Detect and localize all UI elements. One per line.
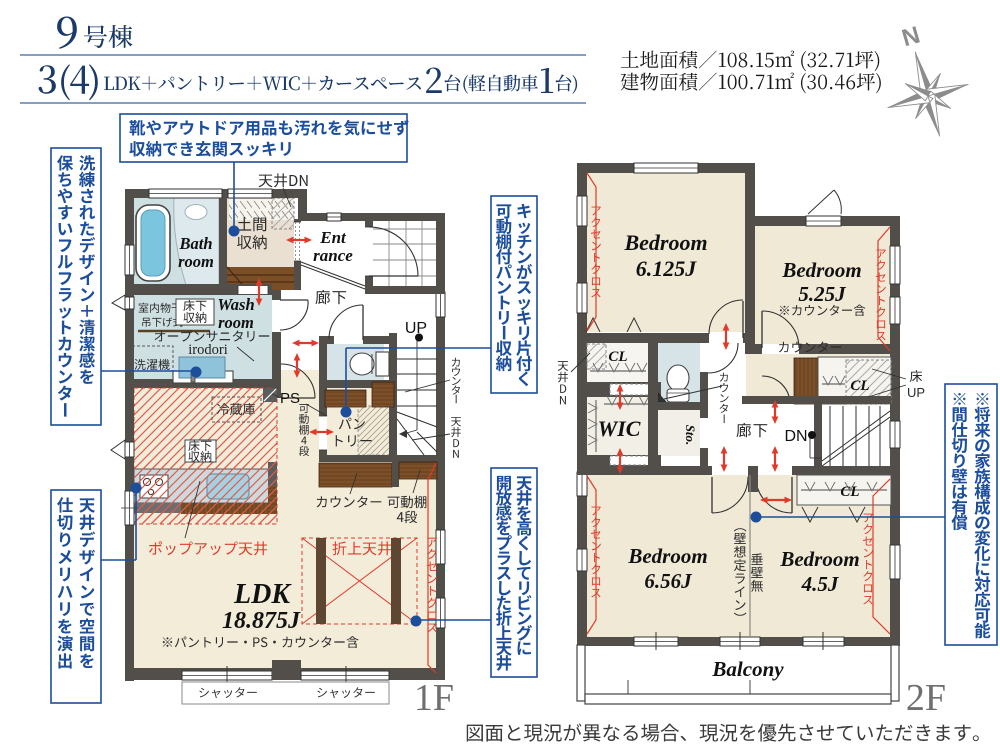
svg-text:Bedroom: Bedroom — [623, 230, 707, 255]
svg-text:LDK: LDK — [233, 579, 292, 610]
svg-text:PS: PS — [280, 390, 300, 407]
svg-text:CL: CL — [850, 378, 869, 394]
svg-text:5.25J: 5.25J — [798, 282, 847, 306]
svg-text:Bedroom: Bedroom — [627, 544, 707, 568]
svg-text:Bath: Bath — [178, 234, 212, 253]
svg-text:room: room — [178, 252, 214, 271]
svg-text:irodori: irodori — [188, 342, 227, 358]
svg-text:2F: 2F — [906, 677, 946, 719]
svg-text:Wash: Wash — [217, 295, 254, 314]
svg-text:Bedroom: Bedroom — [781, 258, 861, 282]
svg-text:18.875J: 18.875J — [222, 608, 301, 634]
svg-text:Sto.: Sto. — [683, 425, 698, 446]
svg-text:CL: CL — [608, 349, 627, 365]
svg-text:Bedroom: Bedroom — [779, 547, 859, 571]
svg-text:WIC: WIC — [598, 416, 641, 441]
svg-text:4.5J: 4.5J — [801, 572, 840, 596]
svg-text:1F: 1F — [414, 677, 454, 719]
svg-text:rance: rance — [313, 246, 353, 265]
svg-text:N: N — [899, 22, 923, 53]
svg-text:UP: UP — [405, 320, 427, 337]
svg-text:room: room — [218, 313, 254, 332]
svg-text:Ent: Ent — [319, 228, 347, 247]
svg-text:UP: UP — [907, 385, 925, 400]
svg-text:CL: CL — [840, 484, 859, 500]
svg-text:6.125J: 6.125J — [636, 256, 698, 281]
svg-text:Balcony: Balcony — [711, 657, 784, 681]
svg-text:DN: DN — [784, 428, 807, 445]
svg-text:6.56J: 6.56J — [644, 569, 693, 593]
